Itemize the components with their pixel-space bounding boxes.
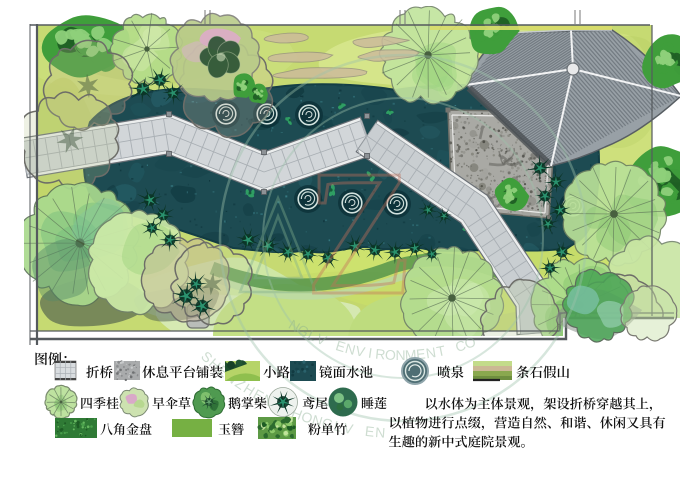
svg-text:Z: Z [305,133,415,332]
svg-text:N: N [375,424,386,441]
svg-text:E: E [364,423,375,440]
